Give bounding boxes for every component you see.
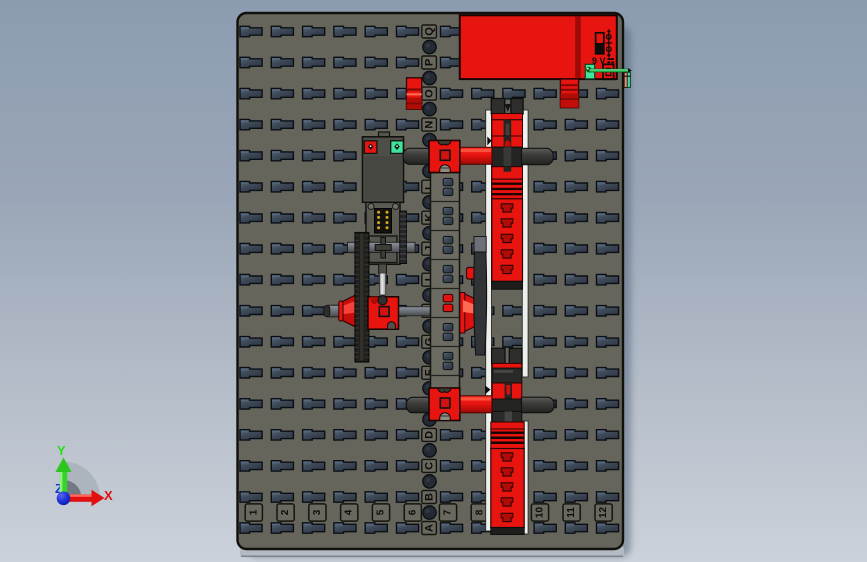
svg-text:P: P: [424, 59, 436, 66]
svg-text:D: D: [424, 431, 436, 439]
svg-text:N: N: [424, 121, 436, 129]
svg-text:X: X: [104, 488, 113, 503]
svg-text:Y: Y: [57, 443, 66, 458]
svg-text:7: 7: [443, 509, 454, 515]
svg-text:C: C: [424, 462, 436, 470]
svg-text:6: 6: [407, 509, 418, 515]
svg-text:3: 3: [312, 509, 323, 515]
svg-text:O: O: [424, 89, 436, 98]
svg-text:12: 12: [598, 507, 609, 519]
svg-text:1: 1: [248, 509, 259, 515]
svg-text:11: 11: [566, 507, 577, 518]
svg-text:8: 8: [474, 509, 485, 515]
svg-text:A: A: [424, 524, 436, 532]
svg-text:10: 10: [535, 507, 546, 519]
svg-text:5: 5: [376, 509, 387, 515]
svg-text:2: 2: [280, 509, 291, 515]
svg-text:4: 4: [344, 509, 355, 515]
svg-text:B: B: [424, 493, 436, 501]
svg-text:Q: Q: [424, 27, 436, 36]
